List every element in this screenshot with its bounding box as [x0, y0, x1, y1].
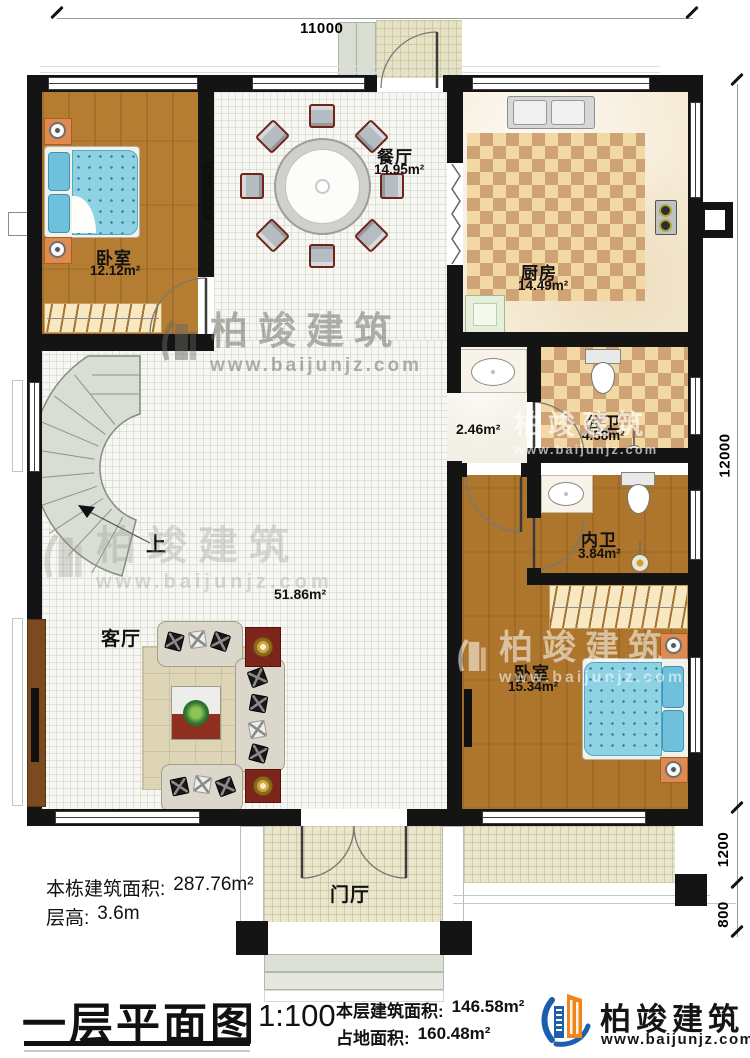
wall — [527, 573, 703, 585]
floor-plan-canvas: 卧室 12.12m² 餐厅 14.95m² 厨房 14.49m² 公卫 4.58… — [0, 0, 750, 1058]
living-area: 51.86m² — [274, 586, 326, 602]
wall — [527, 347, 541, 402]
site-area-value: 160.48m² — [418, 1024, 491, 1049]
flue-niche-inner — [705, 210, 725, 230]
public-bath-area: 4.58m² — [582, 428, 625, 443]
window — [29, 382, 40, 472]
door-arc-foyer-left — [302, 826, 354, 878]
floor-area-value: 146.58m² — [452, 997, 525, 1022]
scale-value: 1:100 — [258, 998, 336, 1034]
door-arc-bedroom1 — [150, 278, 206, 334]
door-arc-foyer-right — [354, 826, 406, 878]
wall — [527, 448, 703, 463]
window — [472, 77, 650, 90]
wall — [447, 265, 463, 332]
pillar — [440, 921, 472, 955]
window — [55, 811, 200, 824]
private-bath-area: 3.84m² — [578, 546, 621, 561]
dimension-top-value: 11000 — [300, 20, 343, 37]
dimension-right-porch: 1200 — [715, 832, 732, 867]
dimension-line-top — [57, 18, 693, 19]
window — [252, 77, 365, 90]
brand-url: www.baijunjz.com — [601, 1031, 750, 1048]
site-area-label: 占地面积: — [336, 1024, 410, 1049]
total-area-note: 本栋建筑面积: 287.76m² — [46, 874, 254, 901]
floor-height-label: 层高: — [46, 903, 89, 930]
dining-area: 14.95m² — [374, 162, 424, 177]
dimension-right-steps: 800 — [715, 901, 732, 928]
title-underline-light — [24, 1050, 250, 1052]
door-arc-porch — [381, 32, 437, 88]
pillar — [236, 921, 268, 955]
bedroom1-area: 12.12m² — [90, 263, 140, 278]
window — [690, 490, 701, 560]
window — [482, 811, 646, 824]
wall — [447, 347, 461, 393]
wall — [27, 334, 214, 351]
tv-icon — [203, 162, 212, 220]
tv-icon — [464, 689, 472, 747]
floor-height-note: 层高: 3.6m — [46, 903, 140, 930]
floor-area-label: 本层建筑面积: — [336, 997, 444, 1022]
wall — [447, 461, 462, 809]
door-arc-private-bath — [534, 518, 584, 570]
wall — [447, 332, 703, 347]
floor-area-note: 本层建筑面积: 146.58m² — [336, 997, 524, 1022]
folding-door-kitchen — [452, 164, 460, 264]
pillar — [675, 874, 707, 906]
window — [48, 77, 198, 90]
living-label: 客厅 — [101, 624, 141, 651]
kitchen-area: 14.49m² — [518, 278, 568, 293]
door-arc-bedroom2 — [466, 477, 521, 532]
total-area-value: 287.76m² — [173, 874, 253, 901]
dimension-right-main: 12000 — [717, 433, 734, 477]
wall — [447, 92, 463, 163]
window — [690, 657, 701, 753]
window — [690, 102, 701, 198]
foyer-label: 门厅 — [330, 880, 370, 907]
total-area-label: 本栋建筑面积: — [46, 874, 165, 901]
site-area-note: 占地面积: 160.48m² — [336, 1024, 490, 1049]
wall — [527, 463, 541, 518]
corridor-area: 2.46m² — [456, 421, 500, 437]
title-underline — [24, 1041, 250, 1046]
stairs-up-label: 上 — [146, 528, 167, 557]
wall — [447, 463, 467, 477]
tv-icon — [31, 688, 39, 762]
brand-logo-icon — [540, 988, 594, 1048]
floor-height-value: 3.6m — [97, 903, 139, 930]
window — [690, 377, 701, 435]
bedroom2-area: 15.34m² — [508, 679, 558, 694]
